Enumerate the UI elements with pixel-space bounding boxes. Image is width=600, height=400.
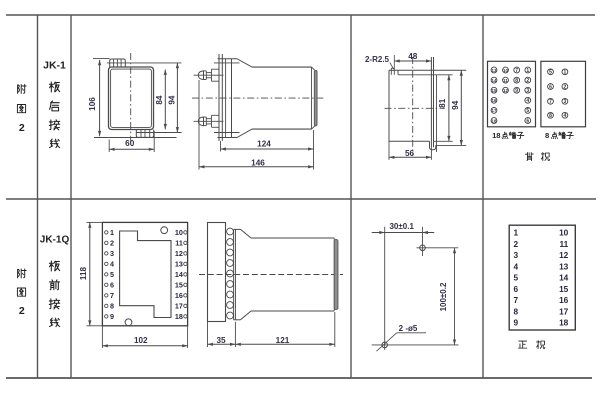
svg-text:2-R2.5: 2-R2.5 [365, 55, 390, 64]
svg-text:9: 9 [515, 88, 518, 94]
svg-text:4: 4 [110, 259, 114, 268]
svg-text:16: 16 [175, 291, 183, 300]
svg-text:JK-1Q: JK-1Q [40, 235, 70, 246]
svg-text:118: 118 [79, 266, 88, 280]
svg-text:8: 8 [514, 306, 519, 316]
svg-text:15: 15 [559, 284, 569, 294]
svg-text:30±0.1: 30±0.1 [389, 222, 414, 231]
svg-text:124: 124 [257, 139, 271, 148]
svg-text:11: 11 [503, 78, 508, 83]
svg-text:102: 102 [134, 336, 148, 345]
svg-text:2: 2 [19, 305, 25, 317]
svg-text:8: 8 [545, 131, 549, 140]
svg-text:17: 17 [492, 108, 497, 113]
svg-text:17: 17 [175, 301, 183, 310]
svg-text:10: 10 [559, 228, 569, 238]
svg-text:12: 12 [175, 249, 183, 258]
svg-text:7: 7 [515, 68, 518, 74]
svg-text:2 -ø5: 2 -ø5 [399, 324, 418, 333]
svg-text:84: 84 [155, 95, 164, 105]
svg-text:5: 5 [110, 270, 114, 279]
svg-text:3: 3 [514, 250, 519, 260]
svg-text:6: 6 [549, 84, 552, 90]
svg-text:5: 5 [549, 70, 552, 76]
svg-text:14: 14 [175, 270, 183, 279]
svg-text:1: 1 [110, 228, 114, 237]
svg-text:8: 8 [515, 78, 518, 84]
svg-text:2: 2 [19, 122, 25, 134]
svg-text:8: 8 [110, 301, 114, 310]
svg-text:9: 9 [514, 318, 519, 328]
svg-text:35: 35 [216, 336, 226, 345]
svg-text:17: 17 [559, 306, 569, 316]
svg-text:15: 15 [175, 280, 183, 289]
svg-text:14: 14 [559, 273, 569, 283]
svg-text:94: 94 [451, 100, 460, 110]
svg-text:1: 1 [526, 68, 529, 74]
svg-text:11: 11 [175, 238, 183, 247]
svg-text:8: 8 [549, 113, 552, 119]
svg-text:7: 7 [549, 99, 552, 105]
svg-text:12: 12 [503, 88, 508, 93]
svg-text:10: 10 [503, 68, 508, 73]
svg-text:16: 16 [492, 98, 497, 103]
svg-text:7: 7 [110, 291, 114, 300]
svg-text:18: 18 [559, 318, 569, 328]
svg-text:JK-1: JK-1 [43, 60, 66, 72]
svg-text:18: 18 [492, 131, 500, 140]
svg-text:106: 106 [88, 97, 97, 111]
svg-text:1: 1 [514, 228, 519, 238]
svg-text:100±0.2: 100±0.2 [439, 282, 448, 311]
svg-text:1: 1 [564, 70, 567, 76]
svg-text:48: 48 [408, 52, 418, 61]
svg-text:56: 56 [405, 149, 415, 158]
svg-text:6: 6 [526, 118, 529, 124]
svg-text:4: 4 [526, 98, 529, 104]
svg-text:7: 7 [514, 295, 519, 305]
svg-text:3: 3 [564, 99, 567, 105]
svg-text:6: 6 [110, 280, 114, 289]
svg-text:13: 13 [175, 259, 183, 268]
svg-text:6: 6 [514, 284, 519, 294]
svg-text:13: 13 [492, 68, 497, 73]
svg-text:18: 18 [492, 118, 497, 123]
svg-text:10: 10 [175, 228, 183, 237]
svg-text:2: 2 [526, 78, 529, 84]
svg-text:2: 2 [564, 84, 567, 90]
svg-text:15: 15 [492, 88, 497, 93]
svg-text:5: 5 [526, 108, 529, 114]
svg-text:3: 3 [110, 249, 114, 258]
svg-text:11: 11 [560, 239, 569, 249]
svg-text:2: 2 [110, 238, 114, 247]
svg-text:13: 13 [559, 261, 569, 271]
svg-text:4: 4 [564, 113, 567, 119]
svg-text:94: 94 [168, 95, 177, 105]
svg-text:9: 9 [110, 312, 114, 321]
svg-text:121: 121 [276, 336, 290, 345]
svg-text:60: 60 [125, 139, 135, 148]
svg-text:5: 5 [514, 273, 519, 283]
svg-text:16: 16 [559, 295, 569, 305]
svg-text:14: 14 [492, 78, 497, 83]
svg-text:12: 12 [559, 250, 569, 260]
svg-text:2: 2 [514, 239, 519, 249]
svg-text:81: 81 [438, 98, 447, 108]
svg-text:18: 18 [175, 312, 183, 321]
svg-text:4: 4 [514, 261, 519, 271]
svg-text:146: 146 [251, 159, 265, 168]
svg-text:3: 3 [526, 88, 529, 94]
